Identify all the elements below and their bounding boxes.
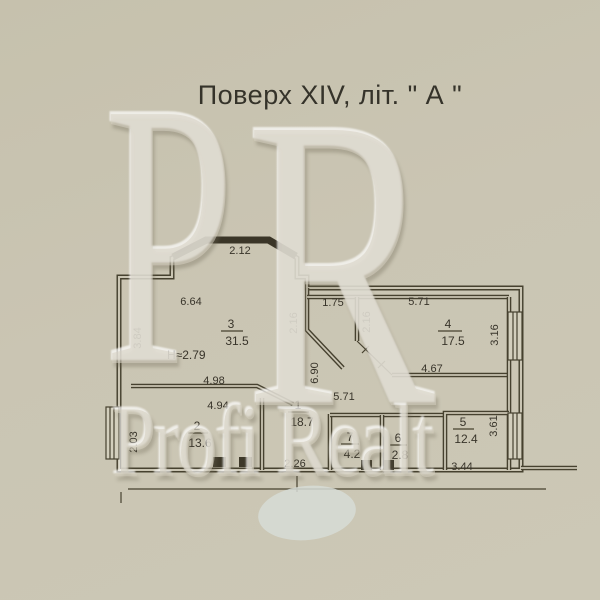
room-4-area: 17.5	[441, 334, 465, 348]
dim-bay-width: 2.12	[229, 245, 250, 257]
dim-room4-side: 2.16	[361, 311, 373, 332]
room-4-label: 4 17.5	[438, 317, 465, 348]
scanned-floor-plan-page: Поверх XIV, літ. " А "	[0, 0, 600, 600]
dim-room3-bottom: 4.98	[203, 375, 224, 387]
dim-room2-top: 4.94	[207, 400, 228, 412]
ceiling-height-note: Н≈2.79	[167, 348, 206, 362]
room-3-label: 3 31.5	[221, 317, 249, 348]
stamp-blob	[255, 481, 358, 545]
room-7-label: 7 4.2	[341, 430, 361, 461]
dim-room5-right: 3.61	[488, 415, 500, 436]
room-1-area: 18.7	[290, 415, 314, 429]
room-4-number: 4	[445, 317, 452, 331]
dim-room4-top: 5.71	[408, 296, 429, 308]
room-5-area: 12.4	[454, 432, 478, 446]
door-hall	[361, 460, 372, 470]
room-5-label: 5 12.4	[453, 415, 478, 446]
room-6-number: 6	[395, 431, 402, 445]
room-2-number: 2	[194, 419, 201, 433]
dim-room2-left: 2.03	[128, 431, 140, 452]
dim-room4-bottom: 4.67	[421, 363, 442, 375]
window-right-room5	[508, 413, 522, 459]
window-right-room4	[508, 312, 522, 360]
room-7-area: 4.2	[344, 447, 361, 461]
dim-hall-width: 5.71	[333, 391, 354, 403]
window-left-room2	[106, 407, 119, 459]
door-room4-diagonal	[357, 341, 392, 375]
room-7-number: 7	[347, 430, 354, 444]
room-6-area: 2.8	[392, 448, 409, 462]
dim-niche-width: 1.75	[322, 297, 343, 309]
dim-room3-top: 6.64	[180, 296, 201, 308]
room-3-area: 31.5	[225, 334, 249, 348]
dim-hall-depth: 6.90	[309, 362, 321, 383]
dim-room3-left: 3.84	[132, 327, 144, 348]
room-2-area: 13.6	[188, 436, 212, 450]
room-2-label: 2 13.6	[188, 419, 212, 450]
room-3-number: 3	[228, 317, 235, 331]
door-room2	[213, 457, 226, 467]
floor-plan: 2.12 6.64 3.84 Н≈2.79 4.98 4.94 2.03 1.7…	[0, 0, 600, 600]
room-5-number: 5	[460, 415, 467, 429]
room-6-label: 6 2.8	[390, 431, 409, 462]
room-labels: 3 31.5 4 17.5 2 13.6 1 18.7 7	[188, 317, 478, 462]
dim-room4-right: 3.16	[489, 324, 501, 345]
dim-entry-width: 2.26	[284, 458, 305, 470]
dim-room5-bottom: 3.44	[451, 461, 472, 473]
dim-niche-left: 2.16	[288, 312, 300, 333]
room-1-number: 1	[295, 398, 302, 412]
